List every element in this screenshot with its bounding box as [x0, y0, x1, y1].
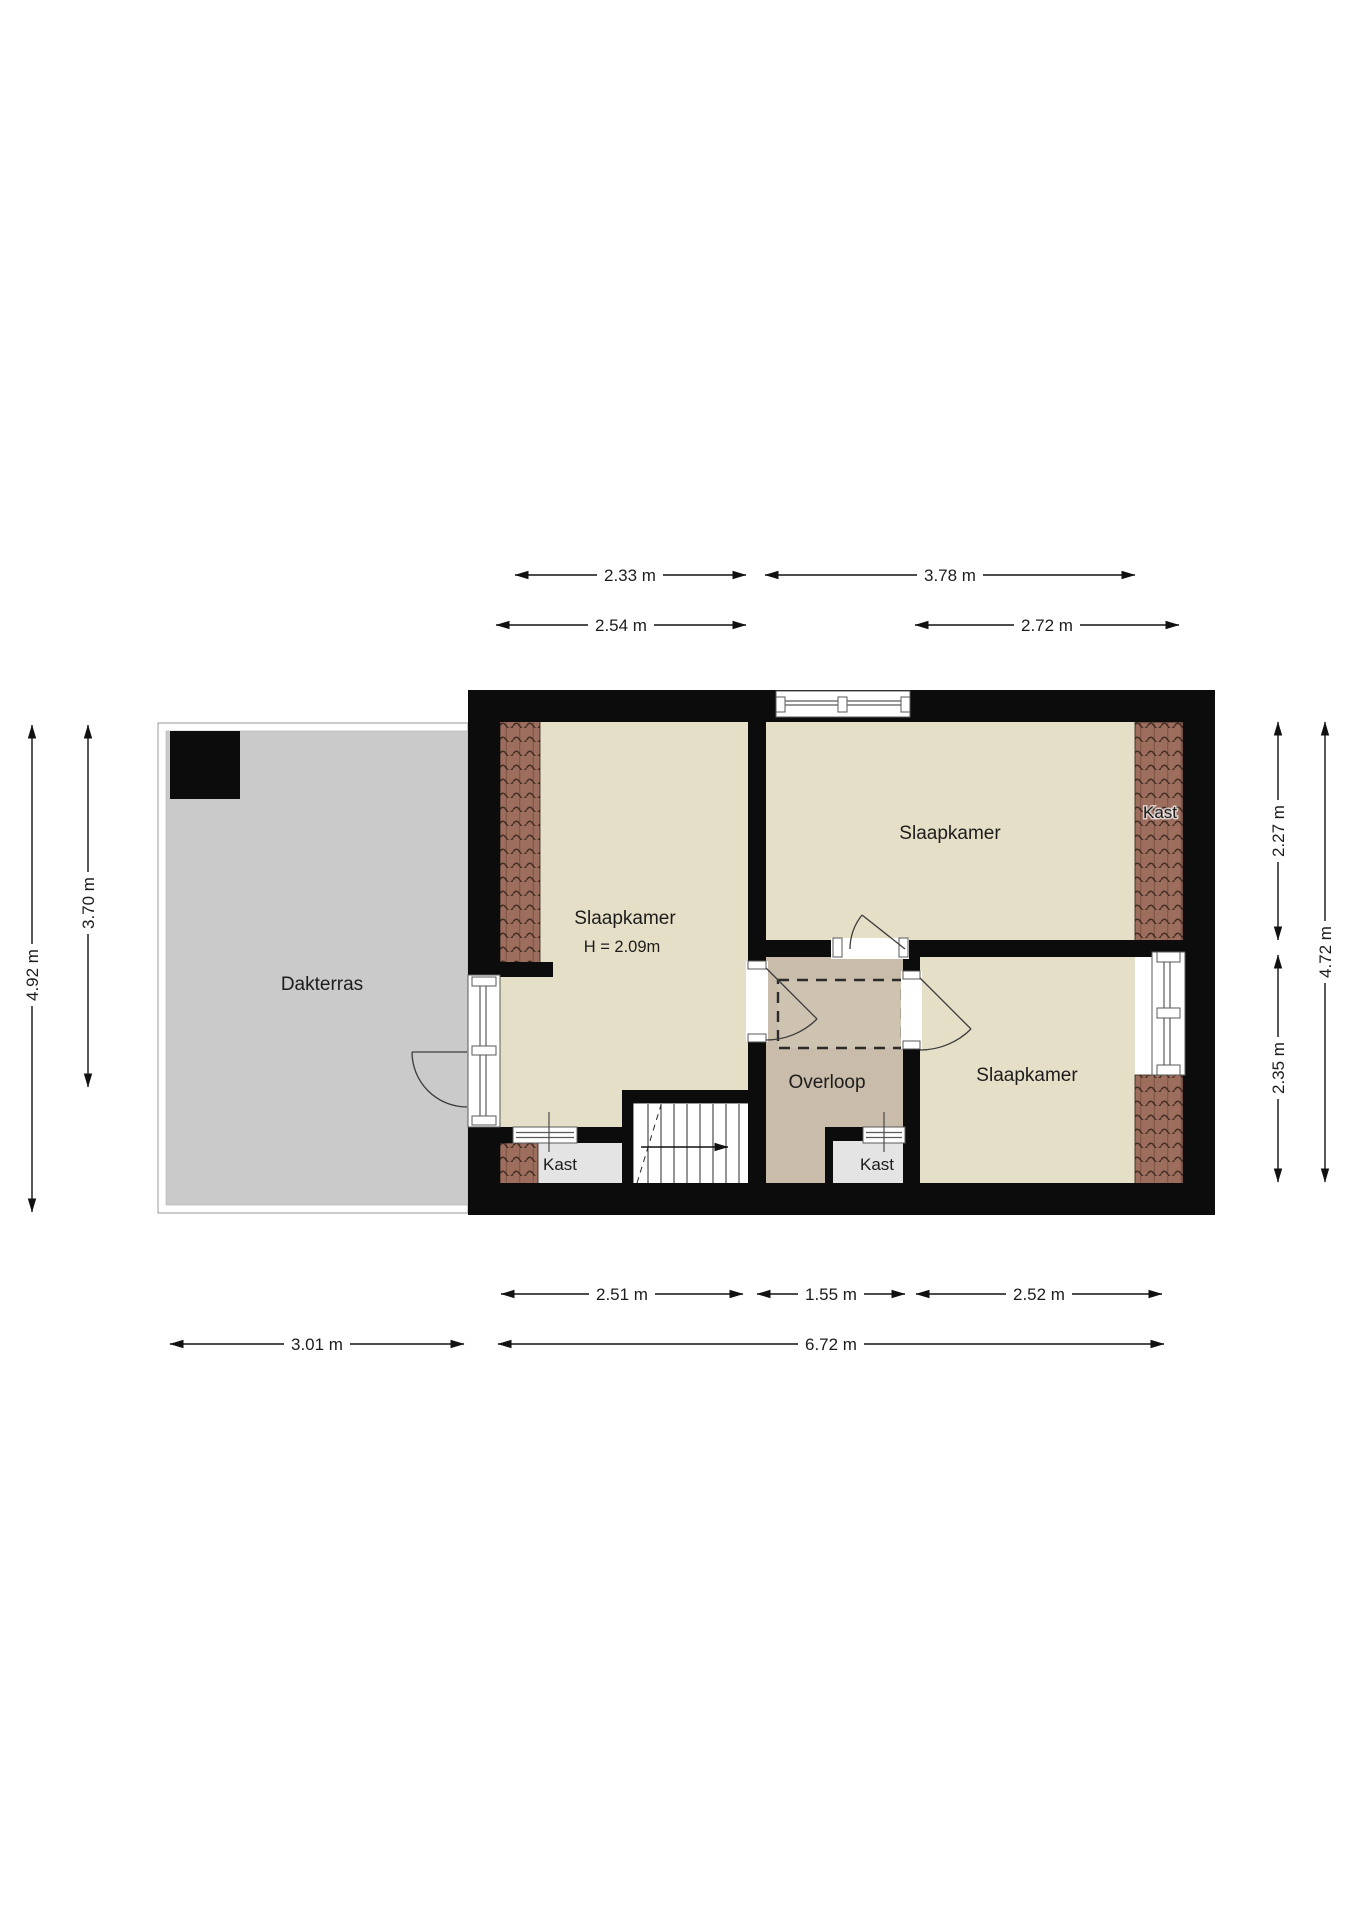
dimension-label: 4.92 m	[23, 949, 42, 1001]
window-top-jamb-left	[776, 697, 785, 712]
dim-bottom-155: 1.55 m	[757, 1285, 905, 1304]
dim-top-272: 2.72 m	[915, 616, 1179, 635]
kast-top-right-label: Kast	[1143, 803, 1177, 822]
dim-right-235: 2.35 m	[1269, 955, 1288, 1182]
dim-bottom-672: 6.72 m	[498, 1335, 1164, 1354]
dakterras-label: Dakterras	[281, 974, 363, 995]
terrace-door-jamb-top	[472, 977, 496, 986]
dimension-label: 2.27 m	[1269, 805, 1288, 857]
terrace-door-jamb-middle	[472, 1046, 496, 1055]
roof-tiles-kast-top-right	[1135, 722, 1183, 942]
dim-right-227: 2.27 m	[1269, 722, 1288, 940]
floor-plan-page: Dakterras Slaapkamer H = 2.09m Slaapkame…	[0, 0, 1358, 1920]
overloop-label: Overloop	[788, 1072, 865, 1093]
dimension-label: 6.72 m	[805, 1335, 857, 1354]
dimension-label: 3.70 m	[79, 877, 98, 929]
dim-bottom-252: 2.52 m	[916, 1285, 1162, 1304]
dim-bottom-301: 3.01 m	[170, 1335, 464, 1354]
dimension-label: 4.72 m	[1316, 926, 1335, 978]
dim-left-370: 3.70 m	[79, 725, 98, 1087]
roof-tiles-kast-bottom-left	[500, 1143, 538, 1185]
dim-top-254: 2.54 m	[496, 616, 746, 635]
dimension-label: 2.35 m	[1269, 1042, 1288, 1094]
door-opening-overloop-bedroomtop	[831, 938, 909, 959]
roof-tiles-bottom-right	[1135, 1075, 1183, 1185]
door-jamb	[903, 1041, 920, 1049]
window-top-jamb-right	[901, 697, 910, 712]
kast-bottom-middle-label: Kast	[860, 1155, 894, 1174]
dim-top-233: 2.33 m	[515, 566, 746, 585]
chimney-block	[170, 731, 240, 799]
dimension-label: 2.52 m	[1013, 1285, 1065, 1304]
window-right-jamb-top	[1157, 952, 1180, 962]
dim-right-472: 4.72 m	[1316, 722, 1335, 1182]
bedroom-left-label: Slaapkamer	[574, 908, 676, 929]
dim-top-378: 3.78 m	[765, 566, 1135, 585]
terrace-door-jamb-bottom	[472, 1116, 496, 1125]
kast-left-opening	[513, 1127, 577, 1143]
bedroom-bottom-right-label: Slaapkamer	[976, 1065, 1078, 1086]
dimension-label: 3.01 m	[291, 1335, 343, 1354]
dimension-label: 3.78 m	[924, 566, 976, 585]
floor-plan-canvas: Dakterras Slaapkamer H = 2.09m Slaapkame…	[0, 0, 1358, 1920]
attic-hatch-dashed-outline	[778, 980, 902, 1048]
dim-bottom-251: 2.51 m	[501, 1285, 743, 1304]
window-top-jamb-middle	[838, 697, 847, 712]
window-right-jamb-bottom	[1157, 1065, 1180, 1075]
door-jamb	[748, 961, 766, 969]
staircase-outline	[633, 1103, 753, 1185]
door-jamb	[748, 1034, 766, 1042]
bedroom-left-height-label: H = 2.09m	[584, 938, 661, 956]
window-right-jamb-middle	[1157, 1008, 1180, 1018]
dimension-label: 2.54 m	[595, 616, 647, 635]
dimension-label: 2.72 m	[1021, 616, 1073, 635]
door-opening-overloop-bedroomright	[901, 971, 922, 1049]
kast-bottom-left-label: Kast	[543, 1155, 577, 1174]
staircase	[633, 1103, 753, 1185]
dimension-label: 2.51 m	[596, 1285, 648, 1304]
door-opening-bedroomleft-overloop	[746, 961, 768, 1042]
dim-left-492: 4.92 m	[23, 725, 42, 1212]
dimension-label: 2.33 m	[604, 566, 656, 585]
terrace-floor	[166, 731, 468, 1205]
door-jamb	[833, 938, 842, 957]
roof-tiles-left-strip	[500, 720, 540, 964]
bedroom-top-right-label: Slaapkamer	[899, 823, 1001, 844]
door-jamb	[903, 971, 920, 979]
terrace	[158, 723, 468, 1213]
dimension-label: 1.55 m	[805, 1285, 857, 1304]
